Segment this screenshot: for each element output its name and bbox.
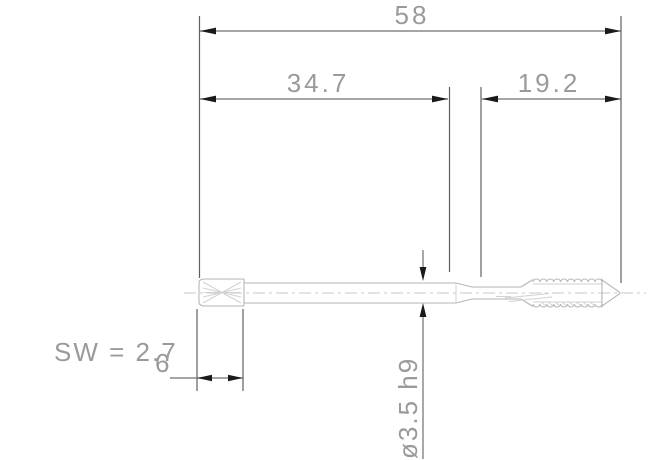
arrow-right-19-2 (605, 96, 621, 103)
arrow-up-dia (420, 303, 427, 317)
arrow-left-19-2 (482, 96, 498, 103)
arrow-right-58 (605, 28, 621, 35)
dimension-label-19-2: 19.2 (518, 68, 581, 98)
arrow-right-34-7 (432, 96, 448, 103)
arrow-left-square (197, 375, 212, 381)
dimension-label-34-7: 34.7 (287, 68, 350, 98)
arrow-down-dia (420, 267, 427, 281)
arrow-left-34-7 (200, 96, 216, 103)
dimension-label-dia: ø3.5 h9 (393, 357, 423, 459)
dimension-overall-length: 58 (200, 0, 621, 34)
square-drive-cross-pattern (203, 282, 241, 303)
spiral-point-flute (496, 294, 552, 302)
tap-drawing: 58 34.7 19.2 ø3.5 h9 6 SW = 2.7 (0, 0, 670, 460)
arrow-right-square (228, 375, 243, 381)
square-width-note-label: SW = 2.7 (54, 337, 178, 367)
dimension-label-58: 58 (395, 0, 430, 30)
dimension-thread-length: 19.2 (482, 68, 621, 102)
dimension-square: 6 SW = 2.7 (54, 337, 243, 381)
thread-crests-top (533, 279, 602, 282)
technical-drawing-canvas: 58 34.7 19.2 ø3.5 h9 6 SW = 2.7 (0, 0, 670, 460)
arrow-left-58 (200, 28, 216, 35)
dimension-front-length: 34.7 (200, 68, 448, 102)
dimension-shank-diameter: ø3.5 h9 (393, 250, 426, 459)
